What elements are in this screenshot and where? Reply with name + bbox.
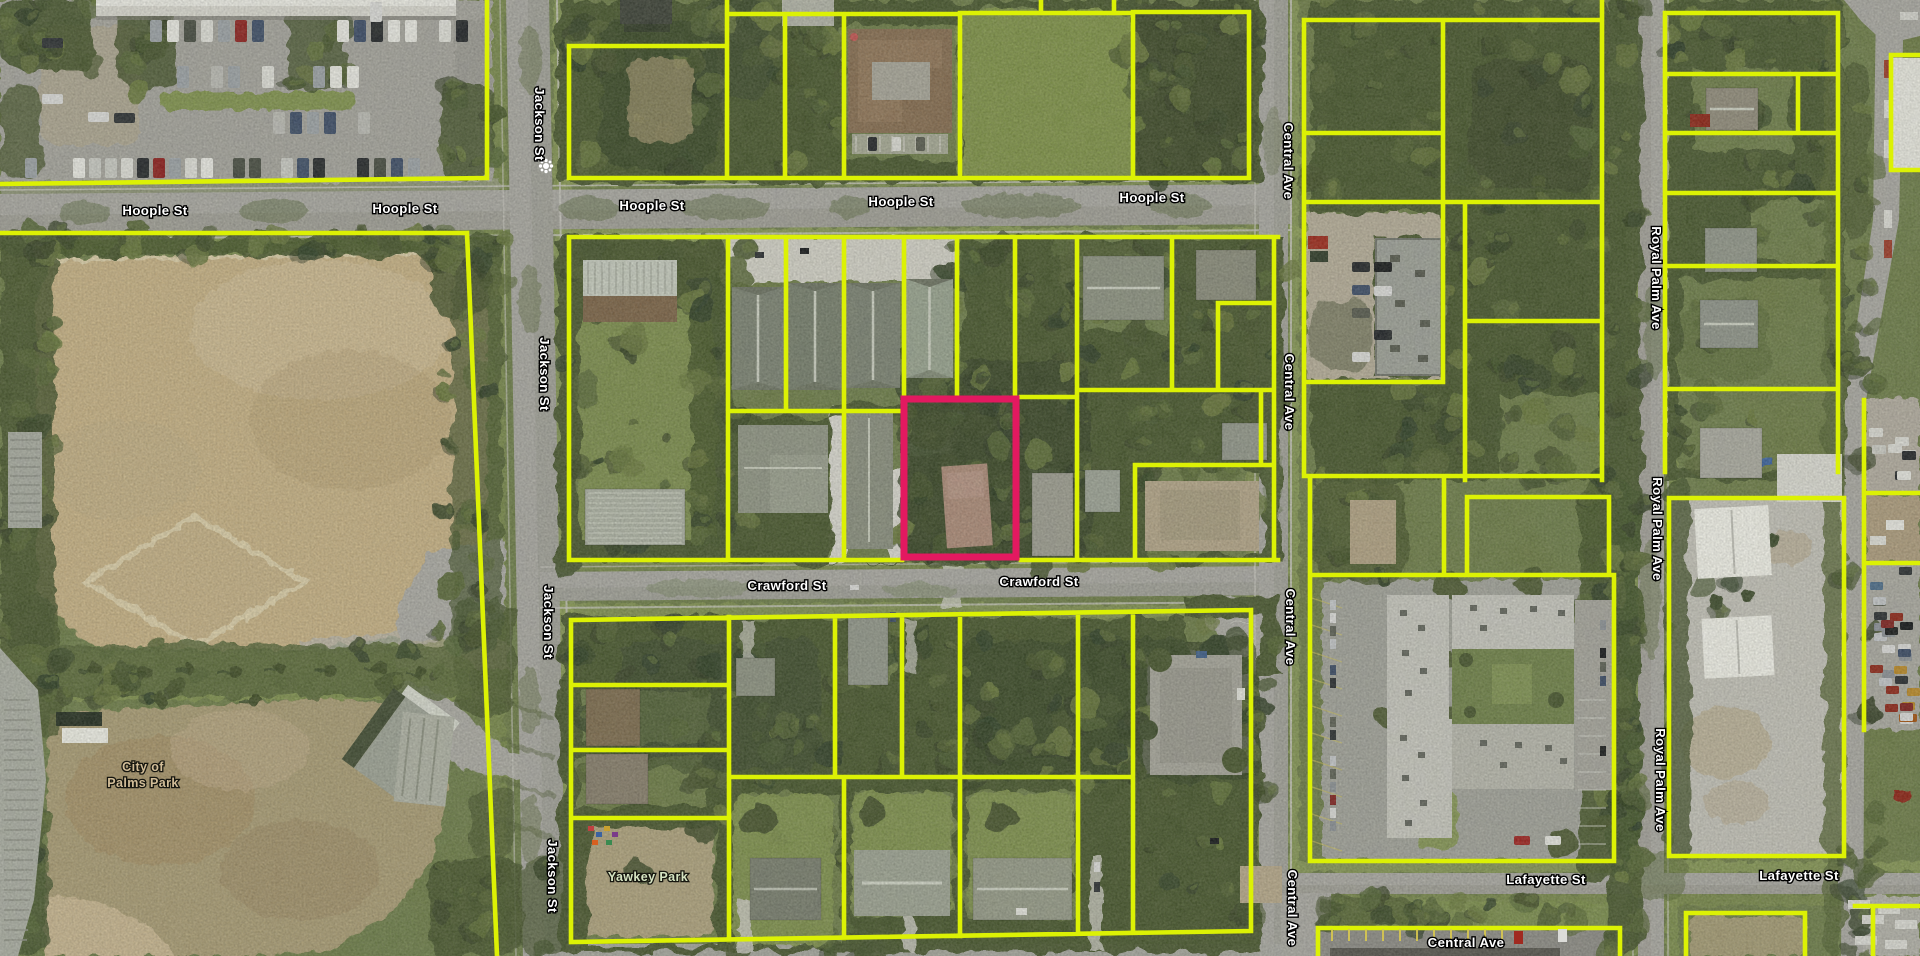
svg-text:Jackson St: Jackson St [545, 839, 560, 913]
svg-text:Central Ave: Central Ave [1281, 123, 1296, 200]
svg-text:City of: City of [122, 760, 164, 774]
svg-text:Hoople St: Hoople St [619, 198, 684, 213]
svg-text:Hoople St: Hoople St [868, 194, 933, 209]
svg-text:Palms Park: Palms Park [107, 776, 178, 790]
svg-text:Royal Palm Ave: Royal Palm Ave [1653, 728, 1668, 832]
svg-text:Jackson St: Jackson St [541, 585, 556, 659]
svg-text:Hoople St: Hoople St [372, 201, 437, 216]
svg-text:Jackson St: Jackson St [532, 87, 547, 161]
svg-text:Hoople St: Hoople St [1119, 190, 1184, 205]
svg-text:Hoople St: Hoople St [122, 203, 187, 218]
svg-text:Central Ave: Central Ave [1283, 589, 1298, 666]
svg-text:Crawford St: Crawford St [747, 578, 826, 593]
svg-text:Central Ave: Central Ave [1428, 935, 1505, 950]
svg-text:Central Ave: Central Ave [1282, 354, 1297, 431]
svg-text:Crawford St: Crawford St [999, 574, 1078, 589]
svg-text:Royal Palm Ave: Royal Palm Ave [1649, 226, 1664, 330]
svg-text:Lafayette St: Lafayette St [1759, 868, 1839, 883]
svg-text:Central Ave: Central Ave [1285, 870, 1300, 947]
svg-text:Lafayette St: Lafayette St [1506, 872, 1586, 887]
svg-text:Royal Palm Ave: Royal Palm Ave [1650, 477, 1665, 581]
svg-text:Jackson St: Jackson St [537, 337, 552, 411]
svg-text:Yawkey Park: Yawkey Park [608, 870, 688, 884]
